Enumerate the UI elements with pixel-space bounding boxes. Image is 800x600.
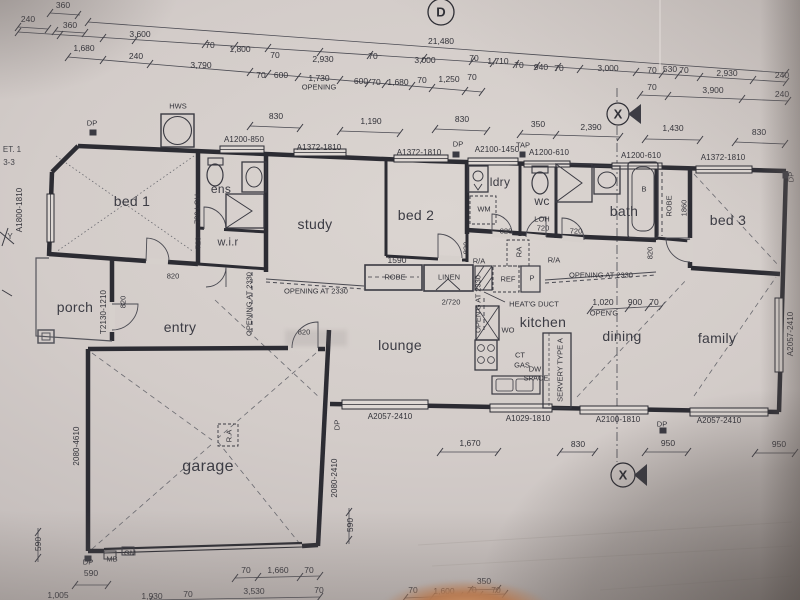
dimension-label: 1,680 (387, 78, 408, 87)
dimension-label: 70 (314, 586, 323, 595)
dimension-label: 1,710 (487, 57, 508, 66)
annotation-label: B (641, 185, 646, 193)
annotation-label: OPENING AT 2330 (245, 272, 253, 336)
windows_door-label: A2057-2410 (368, 413, 413, 421)
dimension-label: 900 (628, 298, 642, 307)
annotation-label: HEAT'G DUCT (509, 300, 559, 308)
annotation-label: 2/720 (442, 298, 461, 306)
edge_ref-label: 3-3 (3, 159, 15, 167)
dimension-label: 1,250 (438, 75, 459, 84)
annotation-label: 820 (646, 247, 654, 260)
annotation-label: 720 LOH (193, 194, 201, 224)
dimension-label: 240 (775, 71, 789, 80)
dimension-label: 600 (274, 71, 288, 80)
windows_door-label: 2080-4610 (73, 426, 81, 465)
annotation-label: GAS (514, 361, 530, 369)
dimension-label: 21,480 (428, 37, 454, 46)
windows_door-label: T2130-1210 (100, 290, 108, 334)
dimension-label: 70 (647, 66, 656, 75)
room-label: bath (610, 204, 638, 218)
windows_door-label: 2080-2410 (331, 458, 339, 497)
dimension-label: 1,600 (433, 587, 454, 596)
annotation-label: LINEN (438, 273, 460, 281)
annotation-label: OPENING AT 2330 (569, 271, 633, 279)
dimension-label: 70 (371, 78, 380, 87)
annotation-label: OPENING AT 2330 (284, 287, 348, 295)
annotation-label: TAP (516, 141, 530, 149)
annotation-label: 820 (167, 272, 180, 280)
annotation-label: 1860 (680, 200, 688, 217)
windows_door-label: A1800-1810 (16, 188, 24, 233)
dimension-label: 70 (469, 54, 478, 63)
dimension-label: 3,900 (702, 86, 723, 95)
annotation-label: ROBE (384, 273, 405, 281)
dimension-label: 3,790 (190, 61, 211, 70)
annotation-label: DP (787, 172, 795, 182)
dimension-label: 3,000 (597, 64, 618, 73)
windows_door-label: A1372-1810 (397, 149, 442, 157)
annotation-label: WO (502, 326, 515, 334)
windows_door-label: A1372-1810 (701, 154, 746, 162)
annotation-label: MB (106, 555, 117, 563)
annotation-label: DP (83, 558, 93, 566)
dimension-label: 830 (269, 112, 283, 121)
windows_door-label: A1029-1810 (506, 415, 551, 423)
dimension-label: 1,680 (73, 44, 94, 53)
annotation-label: 720 (194, 237, 202, 250)
dimension-label: 70 (368, 52, 377, 61)
dimension-label: 1,430 (662, 124, 683, 133)
dimension-label: 830 (455, 115, 469, 124)
annotation-label: OPEN'G (590, 309, 619, 317)
dimension-label: 3,600 (129, 30, 150, 39)
annotation-label: P (529, 274, 534, 282)
annotation-label: R.A (225, 430, 233, 443)
room-label: family (698, 331, 736, 345)
paper-crease (659, 0, 661, 72)
dimension-label: 1,730 (308, 74, 329, 83)
room-label: bed 1 (114, 194, 151, 208)
room-label: ens (211, 183, 231, 195)
windows_door-label: A2057-2410 (697, 417, 742, 425)
annotation-label: RA (515, 247, 523, 257)
dimension-label: 830 (571, 440, 585, 449)
dimension-label: 940 (534, 63, 548, 72)
annotation-label: CT (515, 351, 525, 359)
edge_ref-label: ET. 1 (3, 146, 21, 154)
annotation-label: DP (333, 420, 341, 430)
dimension-label: 350 (531, 120, 545, 129)
dimension-label: 70 (183, 590, 192, 599)
annotation-label: 720 (537, 224, 550, 232)
dimension-label: 70 (241, 566, 250, 575)
dimension-label: 600 (354, 77, 368, 86)
annotation-label: SERVERY TYPE A (556, 338, 564, 402)
annotation-label: R/A (473, 257, 486, 265)
room-label: ldry (490, 176, 511, 188)
dimension-label: 1,930 (141, 592, 162, 600)
dimension-label: 3,000 (414, 56, 435, 65)
dimension-label: 2,930 (312, 55, 333, 64)
dimension-label: 70 (491, 586, 500, 595)
dimension-label: 2,930 (716, 69, 737, 78)
bleedthrough-smudge (285, 330, 347, 346)
annotation-label: 820 (500, 227, 513, 235)
dimension-label: 950 (661, 439, 675, 448)
annotation-label: ROBE (665, 195, 673, 216)
dimension-label: 70 (679, 66, 688, 75)
marker-label: D (436, 6, 445, 19)
room-label: kitchen (520, 315, 566, 329)
annotation-label: HWS (169, 102, 187, 110)
windows_door-label: A2057-2410 (787, 312, 795, 357)
dimension-label: 70 (408, 586, 417, 595)
annotation-label: 720 (570, 227, 583, 235)
dimension-label: 590 (346, 518, 355, 532)
dimension-label: 70 (467, 586, 476, 595)
dimension-label: 70 (649, 298, 658, 307)
dimension-label: 70 (514, 61, 523, 70)
windows_door-label: A1200-850 (224, 136, 264, 144)
dimension-label: 830 (752, 128, 766, 137)
room-label: bed 3 (710, 213, 747, 227)
dimension-label: 1,005 (47, 591, 68, 600)
room-label: porch (57, 300, 94, 314)
dimension-label: 70 (270, 51, 279, 60)
windows_door-label: A1200-610 (529, 149, 569, 157)
room-label: study (298, 217, 333, 231)
annotation-label: DP (657, 420, 667, 428)
dimension-label: 950 (772, 440, 786, 449)
dimension-label: 70 (554, 64, 563, 73)
room-label: dining (602, 329, 641, 343)
dimension-label: 530 (663, 65, 677, 74)
dimension-label: 1,660 (267, 566, 288, 575)
dimension-label: 70 (417, 76, 426, 85)
room-label: garage (182, 459, 234, 475)
windows_door-label: A1372-1810 (297, 144, 342, 152)
dimension-label: 1,670 (459, 439, 480, 448)
annotation-label: OPENING (302, 83, 337, 91)
dimension-label: 70 (205, 41, 214, 50)
floorplan-photo: bed 1ensw.i.rstudybed 2ldrywcbathbed 3po… (0, 0, 800, 600)
dimension-label: 240 (129, 52, 143, 61)
dimension-label: 1,190 (360, 117, 381, 126)
annotation-label: GM (124, 549, 136, 557)
dimension-label: 1590 (388, 256, 407, 265)
annotation-label: WM (477, 205, 490, 213)
dimension-label: 350 (477, 577, 491, 586)
dimension-label: 240 (21, 15, 35, 24)
room-label: bed 2 (398, 208, 435, 222)
annotation-label: 820 (119, 296, 127, 309)
annotation-label: REF (501, 275, 516, 283)
dimension-label: 70 (467, 73, 476, 82)
dimension-label: 590 (34, 537, 43, 551)
room-label: w.i.r (217, 238, 238, 249)
windows_door-label: A2100-1810 (596, 416, 641, 424)
annotation-label: DW (529, 365, 542, 373)
annotation-label: DP (87, 119, 97, 127)
annotation-label: 820 (462, 242, 470, 255)
dimension-label: 1,020 (592, 298, 613, 307)
dimension-label: 70 (256, 71, 265, 80)
edge_ref-label: Y (7, 233, 12, 241)
room-label: wc (534, 195, 549, 207)
dimension-label: 360 (56, 1, 70, 10)
dimension-label: 240 (775, 90, 789, 99)
dimension-label: 360 (63, 21, 77, 30)
dimension-label: 1,800 (229, 45, 250, 54)
windows_door-label: A1200-610 (621, 152, 661, 160)
marker-label: X (614, 108, 623, 121)
windows_door-label: A2100-1450 (475, 146, 520, 154)
marker-label: X (619, 469, 628, 482)
annotation-label: R/A (548, 256, 561, 264)
room-label: entry (164, 320, 197, 334)
dimension-label: 70 (647, 83, 656, 92)
annotation-label: LOH (534, 215, 549, 223)
dimension-label: 590 (84, 569, 98, 578)
room-label: lounge (378, 338, 422, 352)
annotation-label: SPACE (524, 374, 549, 382)
labels-layer: bed 1ensw.i.rstudybed 2ldrywcbathbed 3po… (0, 0, 800, 600)
annotation-label: DP (453, 140, 463, 148)
dimension-label: 2,390 (580, 123, 601, 132)
annotation-label: OPEN'G AT 2330 (474, 275, 482, 333)
dimension-label: 3,530 (243, 587, 264, 596)
dimension-label: 70 (304, 566, 313, 575)
